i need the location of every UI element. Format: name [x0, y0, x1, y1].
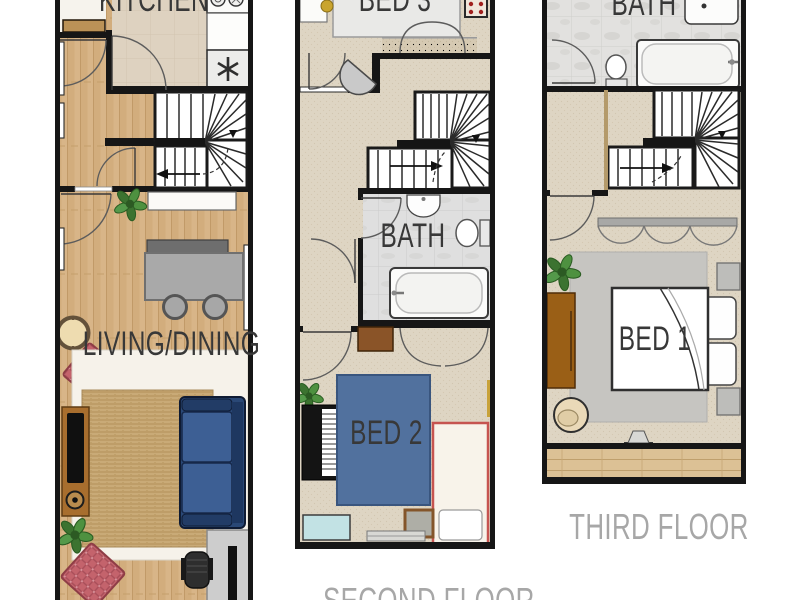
- third-floor-caption: THIRD FLOOR: [569, 509, 719, 545]
- dresser: [358, 327, 393, 351]
- stool: [204, 296, 227, 319]
- bed3-label: BED 3: [323, 0, 467, 17]
- bed1-label: BED 1: [618, 322, 693, 356]
- door-sill: [300, 87, 348, 92]
- sink-icon: [407, 195, 440, 217]
- dining-table: [145, 253, 243, 300]
- pillow: [439, 510, 482, 540]
- toilet-icon: [606, 55, 627, 87]
- balcony-deck: [547, 449, 741, 477]
- third-floor-plan: [542, 0, 746, 484]
- kitchen-label: KITCHEN: [83, 0, 226, 17]
- bathtub-icon: [637, 40, 739, 88]
- mirror: [303, 515, 350, 540]
- office-chair: [181, 552, 213, 588]
- bath2-label: BATH: [365, 219, 461, 253]
- stool: [164, 296, 187, 319]
- wall: [105, 138, 155, 146]
- nightstand: [717, 388, 740, 415]
- bathtub-icon: [390, 268, 488, 318]
- wall: [60, 186, 75, 192]
- door-mat: [63, 20, 105, 32]
- wardrobe: [547, 293, 575, 388]
- wall: [358, 188, 490, 194]
- handrail: [604, 90, 608, 190]
- door-sill: [75, 187, 112, 191]
- bed2-label: BED 2: [350, 416, 418, 450]
- wall: [592, 190, 608, 196]
- monitor-icon: [228, 546, 237, 600]
- wall: [106, 30, 112, 92]
- bathroom: [358, 188, 490, 328]
- wall: [542, 443, 746, 449]
- dining-bench: [147, 240, 228, 253]
- living-dining-label: LIVING/DINING: [83, 327, 226, 361]
- fridge-icon: [207, 50, 249, 88]
- wall: [60, 32, 107, 38]
- balcony-rail: [367, 531, 425, 541]
- console-table: [148, 192, 236, 210]
- first-floor-plan: [55, 0, 253, 600]
- single-bed: [433, 423, 488, 545]
- sofa: [180, 397, 245, 528]
- nightstand: [717, 263, 740, 290]
- tv-icon: [67, 413, 84, 483]
- second-floor-plan: [295, 0, 495, 549]
- second-floor-caption: SECOND FLOOR: [323, 583, 467, 600]
- floor-plan-image: KITCHEN LIVING/DINING BED 3 BATH BED 2 S…: [0, 0, 800, 600]
- wall: [380, 53, 493, 59]
- kitchen-counter: [207, 13, 249, 50]
- staircase: [155, 92, 247, 188]
- dresser-red-knobs: [465, 0, 487, 17]
- wall: [358, 238, 363, 326]
- armchair: [554, 398, 588, 432]
- media-console: [62, 407, 89, 516]
- bath3-label: BATH: [571, 0, 718, 21]
